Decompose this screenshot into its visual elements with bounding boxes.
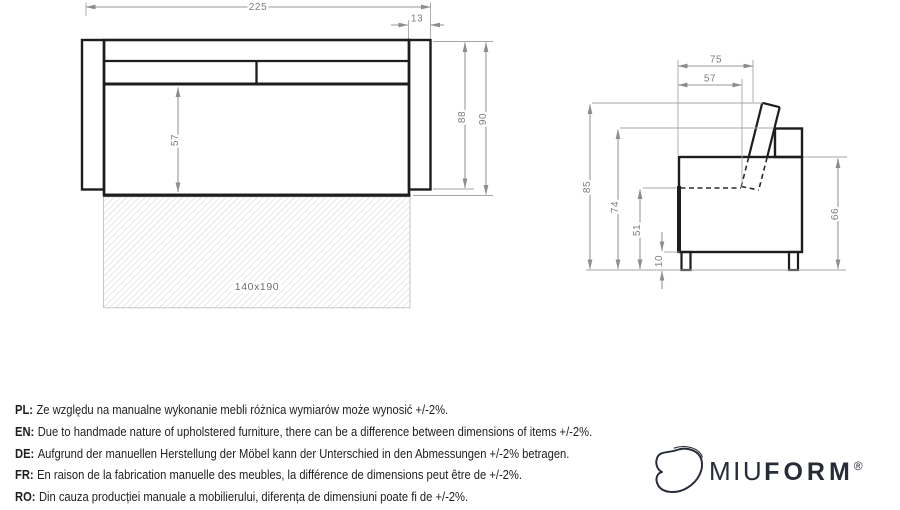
brand-script-part: MIU — [709, 456, 764, 486]
note-text: Aufgrund der manuellen Herstellung der M… — [38, 446, 570, 461]
note-line-en: EN:Due to handmade nature of upholstered… — [15, 421, 592, 443]
mattress-hatch-area: 140x190 — [104, 197, 411, 308]
note-text: En raison de la fabrication manuelle des… — [37, 467, 522, 482]
note-text: Ze względu na manualne wykonanie mebli r… — [36, 402, 448, 417]
dim-body-height: 88 — [457, 111, 468, 123]
dim-leg-height: 10 — [654, 255, 665, 267]
back-leg — [789, 252, 798, 270]
miuform-wordmark: MIUFORM® — [709, 456, 863, 487]
registered-mark: ® — [854, 459, 863, 473]
right-armrest — [409, 40, 431, 190]
sofa-front-outline — [82, 40, 431, 195]
front-view: 140x190 — [82, 2, 493, 308]
dim-seat-height: 51 — [632, 224, 643, 236]
furniture-dimension-sheet: 140x190 — [0, 0, 900, 510]
dim-seat-front-height: 57 — [170, 134, 181, 146]
dim-total-height: 90 — [478, 113, 489, 125]
dim-seat-depth: 57 — [704, 74, 716, 85]
brand-bold-part: FORM — [764, 458, 854, 486]
dim-armrest-width: 13 — [411, 14, 423, 25]
tolerance-notes: PL:Ze względu na manualne wykonanie mebl… — [15, 399, 592, 508]
front-dimensions: 225 13 57 88 90 — [86, 2, 493, 196]
miuform-logo-icon — [650, 445, 706, 497]
note-lang: FR: — [15, 467, 34, 482]
note-lang: RO: — [15, 489, 36, 504]
dim-backrest-height: 74 — [610, 201, 621, 213]
dim-side-total-height: 85 — [582, 181, 593, 193]
dim-total-depth: 75 — [710, 55, 722, 66]
note-line-pl: PL:Ze względu na manualne wykonanie mebl… — [15, 399, 592, 421]
mattress-size-label: 140x190 — [235, 281, 280, 293]
side-view: 75 57 85 74 51 10 66 — [582, 55, 847, 290]
note-line-fr: FR:En raison de la fabrication manuelle … — [15, 464, 592, 486]
note-line-de: DE:Aufgrund der manuellen Herstellung de… — [15, 443, 592, 465]
note-line-ro: RO:Din cauza producției manuale a mobili… — [15, 486, 592, 508]
note-lang: DE: — [15, 446, 34, 461]
miuform-logo: MIUFORM® — [650, 442, 863, 500]
note-lang: PL: — [15, 402, 33, 417]
dimension-drawing: 140x190 — [0, 0, 900, 345]
note-text: Due to handmade nature of upholstered fu… — [38, 424, 592, 439]
left-armrest — [82, 40, 104, 190]
dim-back-height: 66 — [830, 208, 841, 220]
note-text: Din cauza producției manuale a mobilieru… — [39, 489, 468, 504]
dim-total-width: 225 — [249, 2, 268, 13]
side-dimensions: 75 57 85 74 51 10 66 — [582, 55, 847, 290]
back-panel — [775, 129, 802, 158]
note-lang: EN: — [15, 424, 34, 439]
front-leg — [682, 252, 691, 270]
